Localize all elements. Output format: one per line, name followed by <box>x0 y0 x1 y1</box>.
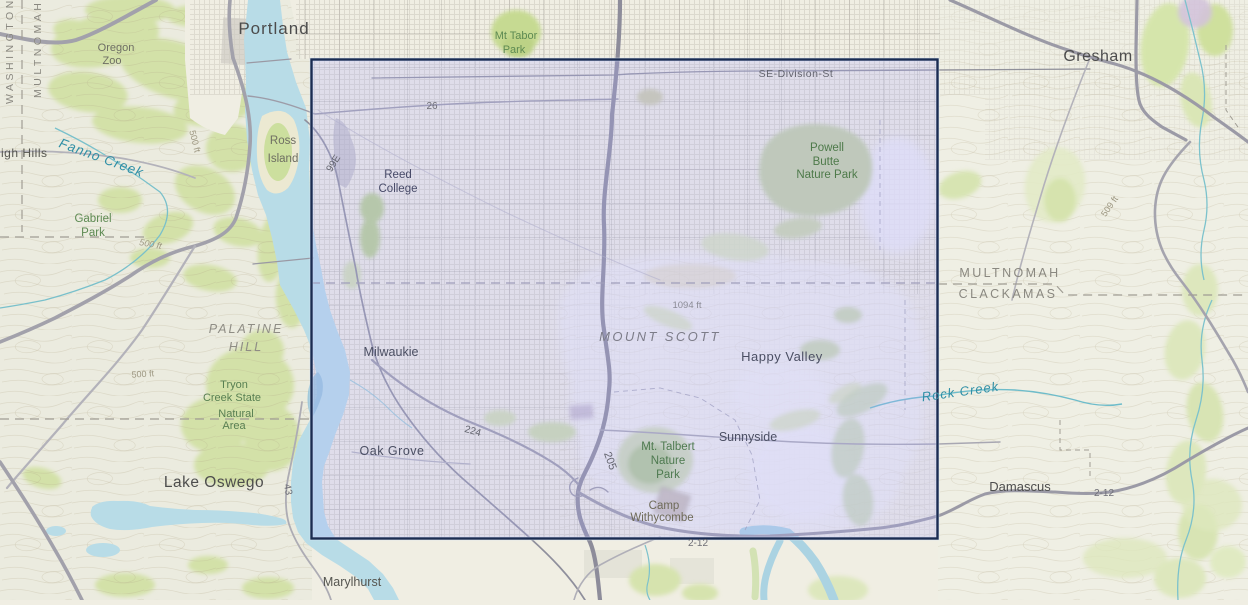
svg-text:Camp: Camp <box>649 500 680 512</box>
svg-text:WASHINGTON: WASHINGTON <box>4 0 16 104</box>
svg-text:Area: Area <box>222 420 246 432</box>
svg-text:Gabriel: Gabriel <box>74 213 111 225</box>
svg-text:Damascus: Damascus <box>989 479 1051 494</box>
svg-text:HILL: HILL <box>229 340 263 354</box>
svg-text:MULTNOMAH: MULTNOMAH <box>32 0 44 98</box>
svg-text:Milwaukie: Milwaukie <box>364 345 419 359</box>
svg-text:MULTNOMAH: MULTNOMAH <box>959 266 1060 280</box>
svg-text:Powell: Powell <box>810 142 844 154</box>
svg-text:Natural: Natural <box>218 408 253 420</box>
svg-text:1094 ft: 1094 ft <box>672 300 701 311</box>
svg-text:Tryon: Tryon <box>220 379 248 391</box>
svg-text:Lake Oswego: Lake Oswego <box>164 474 264 491</box>
svg-text:igh Hills: igh Hills <box>1 146 48 160</box>
svg-text:Zoo: Zoo <box>103 55 122 67</box>
svg-text:Nature Park: Nature Park <box>796 169 858 181</box>
svg-text:MOUNT SCOTT: MOUNT SCOTT <box>599 329 721 344</box>
svg-text:500 ft: 500 ft <box>131 368 155 380</box>
svg-text:Portland: Portland <box>238 19 309 38</box>
svg-text:Withycombe: Withycombe <box>630 512 693 524</box>
svg-text:Reed: Reed <box>384 169 412 181</box>
svg-text:2-12: 2-12 <box>688 538 708 549</box>
svg-text:PALATINE: PALATINE <box>209 322 284 336</box>
svg-text:Gresham: Gresham <box>1063 48 1132 65</box>
svg-text:Happy Valley: Happy Valley <box>741 349 823 364</box>
svg-text:CLACKAMAS: CLACKAMAS <box>959 287 1058 301</box>
svg-text:Creek State: Creek State <box>203 392 261 404</box>
svg-text:Mt Tabor: Mt Tabor <box>495 30 538 42</box>
svg-text:Ross: Ross <box>270 135 296 147</box>
svg-text:2-12: 2-12 <box>1094 488 1114 499</box>
svg-text:Butte: Butte <box>813 156 840 168</box>
svg-text:Park: Park <box>656 469 680 481</box>
svg-text:Park: Park <box>503 44 526 56</box>
svg-text:SE-Division-St: SE-Division-St <box>759 68 834 80</box>
svg-text:Nature: Nature <box>651 455 686 467</box>
svg-text:Oak Grove: Oak Grove <box>360 444 425 458</box>
svg-text:Sunnyside: Sunnyside <box>719 430 777 444</box>
svg-text:Park: Park <box>81 227 105 239</box>
svg-text:College: College <box>379 183 418 195</box>
svg-text:26: 26 <box>426 101 438 112</box>
svg-text:Marylhurst: Marylhurst <box>323 575 382 589</box>
svg-text:Mt. Talbert: Mt. Talbert <box>641 441 695 453</box>
svg-text:Island: Island <box>268 153 299 165</box>
svg-text:Oregon: Oregon <box>98 42 135 54</box>
